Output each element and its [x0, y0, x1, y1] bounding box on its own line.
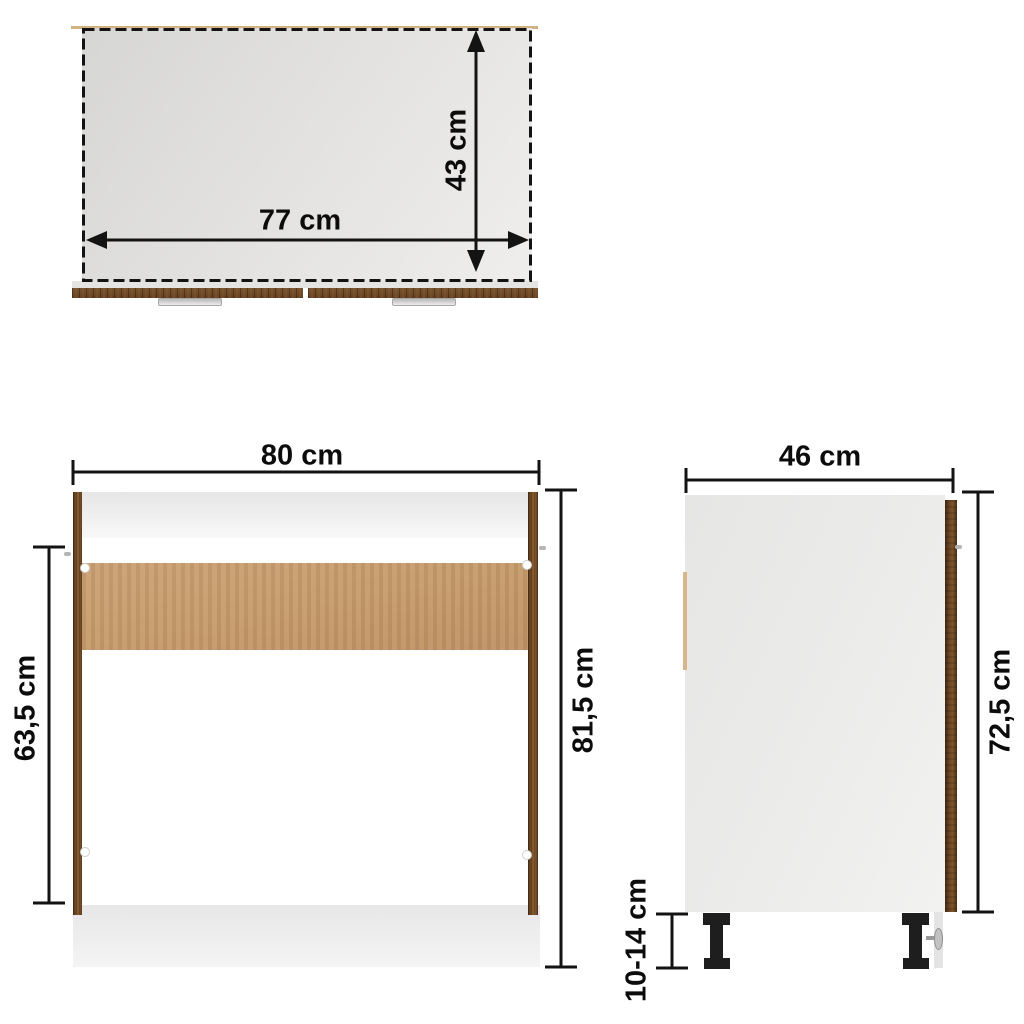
label-front-opening-height: 63,5 cm — [12, 655, 41, 761]
right-leg-stem — [909, 925, 922, 959]
side-panel — [685, 495, 945, 912]
left-door-handle — [158, 298, 222, 306]
front-apron-panel — [82, 563, 528, 650]
hinge-bottom-right — [522, 850, 532, 860]
label-front-width: 80 cm — [261, 442, 343, 471]
dimension-diagram: 77 cm 43 cm 80 cm 63,5 cm 81,5 cm 46 cm … — [0, 0, 1024, 1024]
left-door-top-edge — [72, 288, 303, 298]
front-top-rail — [82, 492, 528, 538]
dim-10-14 — [656, 914, 688, 968]
leg-adjuster-knob — [934, 928, 943, 950]
label-side-body-height: 72,5 cm — [987, 649, 1016, 755]
side-back-strip — [683, 572, 687, 670]
label-top-depth: 43 cm — [443, 109, 472, 191]
label-side-leg-height: 10-14 cm — [623, 878, 652, 1002]
hinge-top-right — [522, 560, 532, 570]
label-side-depth: 46 cm — [779, 443, 861, 472]
left-leg-flange — [703, 913, 730, 925]
right-wall-pin — [539, 546, 546, 550]
hinge-top-left — [80, 563, 90, 573]
left-leg-stem — [710, 925, 723, 959]
right-leg-foot — [903, 958, 929, 969]
right-leg-flange — [902, 913, 929, 925]
label-top-width: 77 cm — [259, 207, 341, 236]
side-door-edge — [945, 500, 957, 912]
left-leg-foot — [704, 958, 730, 969]
hinge-bottom-left — [80, 847, 90, 857]
label-front-total-height: 81,5 cm — [570, 647, 599, 753]
left-wall-pin — [64, 552, 71, 556]
worktop-front-edge — [72, 281, 538, 288]
front-base-panel — [73, 905, 540, 967]
right-door-handle — [392, 298, 456, 306]
right-door-top-edge — [308, 288, 538, 298]
side-pin — [955, 545, 962, 549]
